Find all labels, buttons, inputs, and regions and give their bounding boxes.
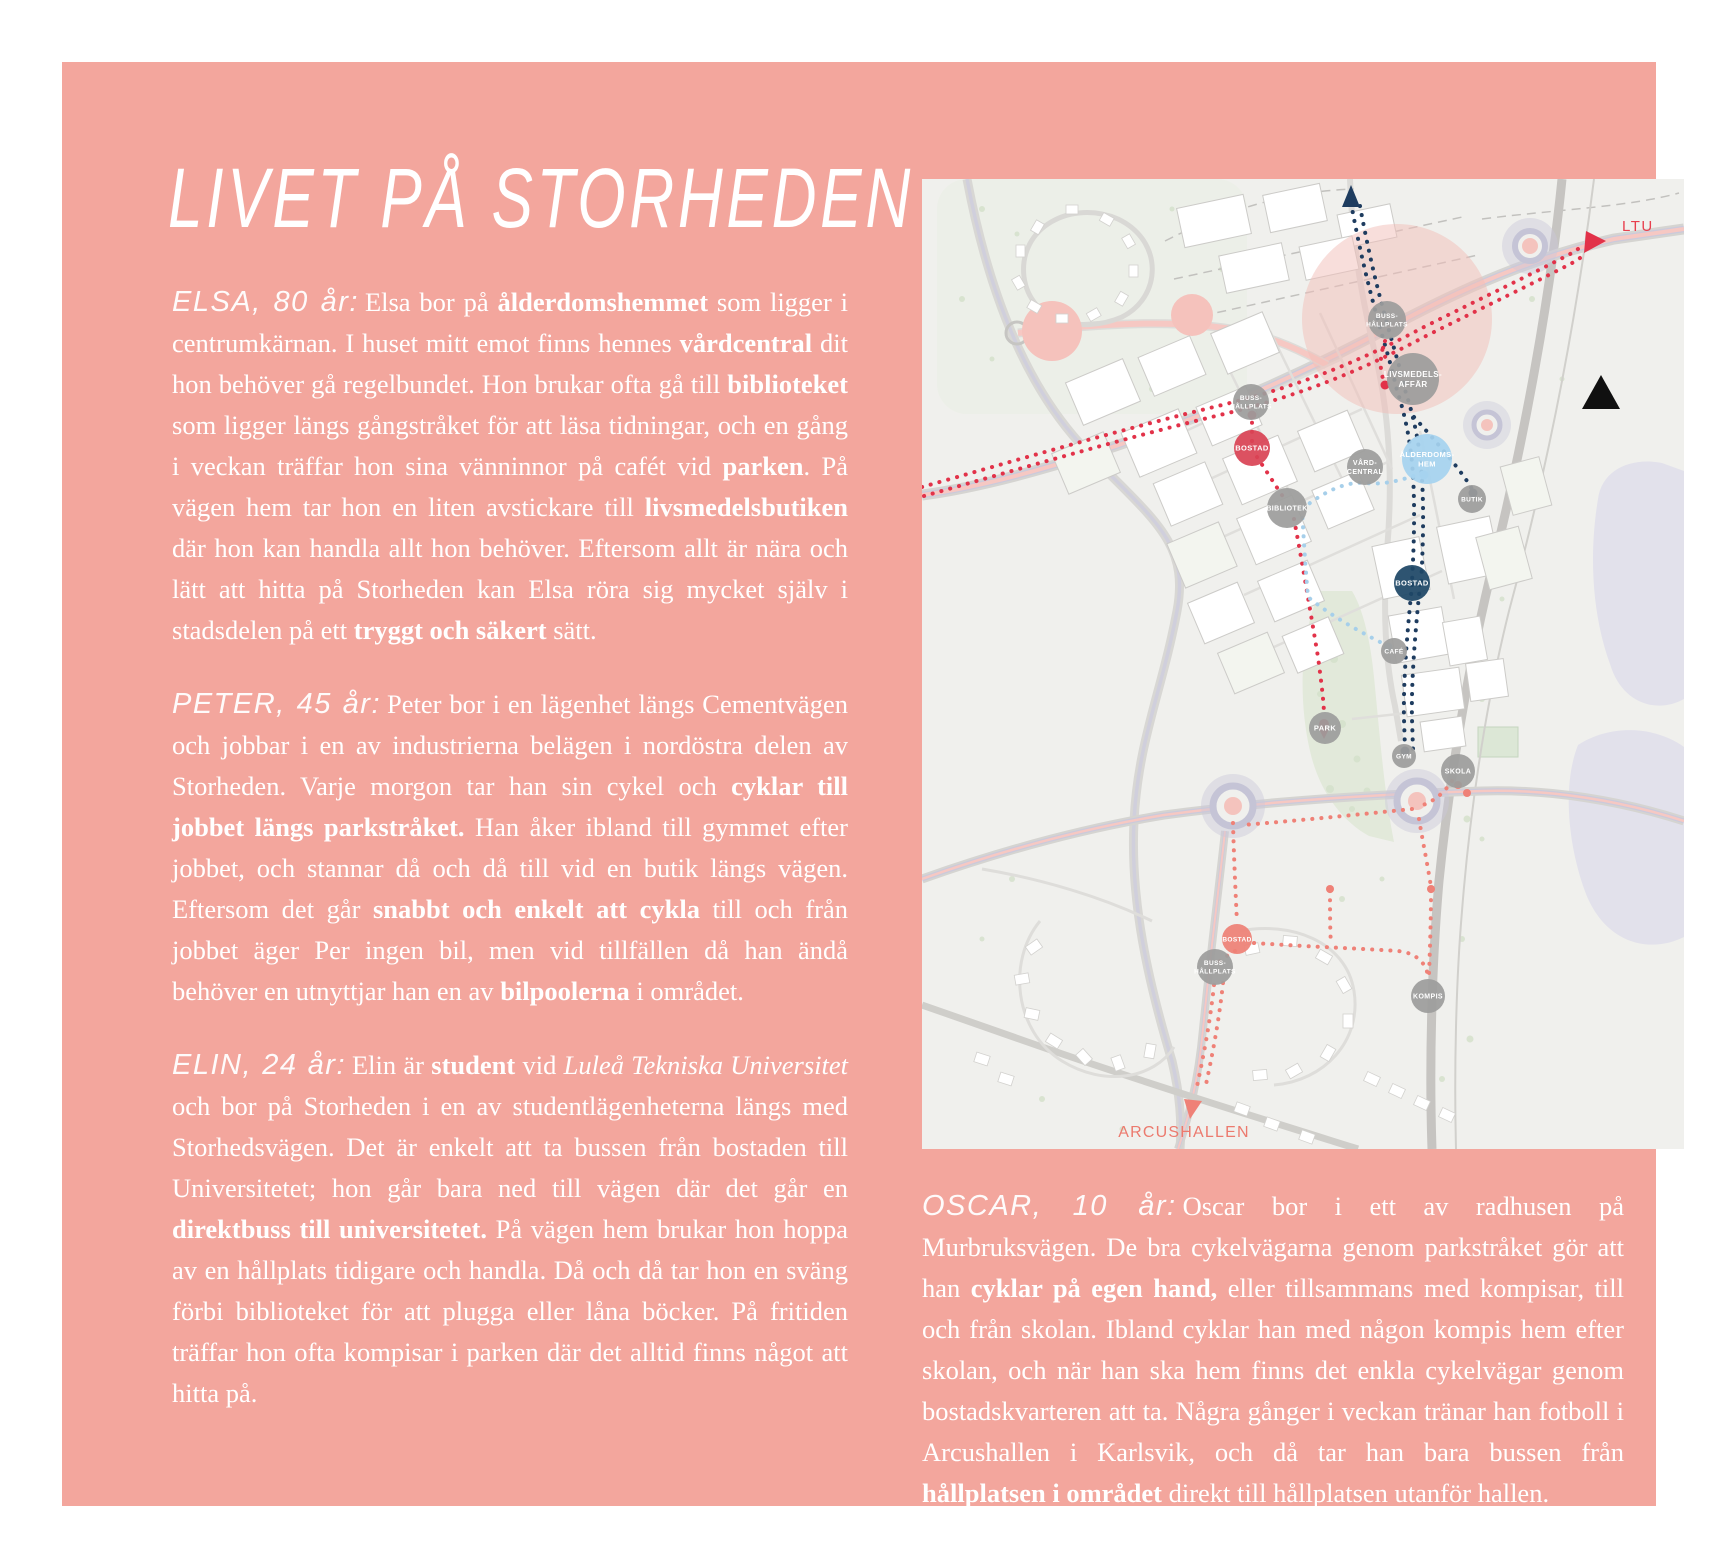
persona-text-elin: Elin är student vid Luleå Tekniska Unive… bbox=[172, 1050, 848, 1408]
left-text-column: ELSA, 80 år:Elsa bor på ålderdomshemmet … bbox=[172, 282, 848, 1447]
oscar-text-column: OSCAR, 10 år:Oscar bor i ett av radhusen… bbox=[922, 1186, 1624, 1547]
map-node-butik: BUTIK bbox=[1458, 485, 1486, 513]
page-title: LIVET PÅ STORHEDEN bbox=[168, 150, 914, 247]
map-label-arcushallen: ARCUSHALLEN bbox=[1118, 1124, 1249, 1141]
svg-text:CAFÉ: CAFÉ bbox=[1384, 646, 1404, 655]
persona-text-oscar: Oscar bor i ett av radhusen på Murbruksv… bbox=[922, 1191, 1624, 1508]
persona-paragraph-peter: PETER, 45 år:Peter bor i en lägenhet län… bbox=[172, 684, 848, 1012]
persona-paragraph-elsa: ELSA, 80 år:Elsa bor på ålderdomshemmet … bbox=[172, 282, 848, 651]
map-node-bostad: BOSTAD bbox=[1222, 924, 1252, 954]
svg-text:KOMPIS: KOMPIS bbox=[1413, 993, 1443, 1000]
storheden-map-svg: BUSS-HÅLLPLATSLIVSMEDELS-AFFÄRBUSS-HÅLLP… bbox=[922, 179, 1684, 1149]
map-label-ltu: LTU bbox=[1622, 218, 1654, 235]
persona-paragraph-elin: ELIN, 24 år:Elin är student vid Luleå Te… bbox=[172, 1045, 848, 1414]
map-node-café: CAFÉ bbox=[1381, 638, 1407, 664]
svg-text:SKOLA: SKOLA bbox=[1445, 768, 1472, 775]
map-node-gym: GYM bbox=[1392, 744, 1416, 768]
map-node-skola: SKOLA bbox=[1441, 754, 1475, 788]
persona-text-elsa: Elsa bor på ålderdomshemmet som ligger i… bbox=[172, 287, 848, 645]
poster-page: LIVET PÅ STORHEDEN ELSA, 80 år:Elsa bor … bbox=[0, 0, 1717, 1567]
map-node-bostad: BOSTAD bbox=[1234, 430, 1270, 466]
svg-text:BUTIK: BUTIK bbox=[1461, 496, 1483, 503]
persona-text-peter: Peter bor i en lägenhet längs Cementväge… bbox=[172, 689, 848, 1006]
svg-text:PARK: PARK bbox=[1314, 724, 1336, 733]
svg-text:BIBLIOTEK: BIBLIOTEK bbox=[1266, 505, 1307, 512]
persona-name-oscar: OSCAR, 10 år: bbox=[922, 1190, 1183, 1222]
storheden-map: BUSS-HÅLLPLATSLIVSMEDELS-AFFÄRBUSS-HÅLLP… bbox=[922, 179, 1684, 1149]
salmon-panel: LIVET PÅ STORHEDEN ELSA, 80 år:Elsa bor … bbox=[62, 62, 1656, 1506]
map-node-kompis: KOMPIS bbox=[1411, 979, 1445, 1013]
svg-text:BOSTAD: BOSTAD bbox=[1235, 444, 1269, 453]
svg-text:BOSTAD: BOSTAD bbox=[1222, 936, 1251, 943]
svg-text:GYM: GYM bbox=[1396, 753, 1412, 760]
persona-name-peter: PETER, 45 år: bbox=[172, 688, 387, 720]
persona-name-elsa: ELSA, 80 år: bbox=[172, 286, 365, 318]
map-node-bostad: BOSTAD bbox=[1394, 565, 1430, 601]
svg-text:BOSTAD: BOSTAD bbox=[1395, 579, 1429, 588]
persona-paragraph-oscar: OSCAR, 10 år:Oscar bor i ett av radhusen… bbox=[922, 1186, 1624, 1514]
persona-name-elin: ELIN, 24 år: bbox=[172, 1049, 352, 1081]
map-node-park: PARK bbox=[1309, 712, 1341, 744]
